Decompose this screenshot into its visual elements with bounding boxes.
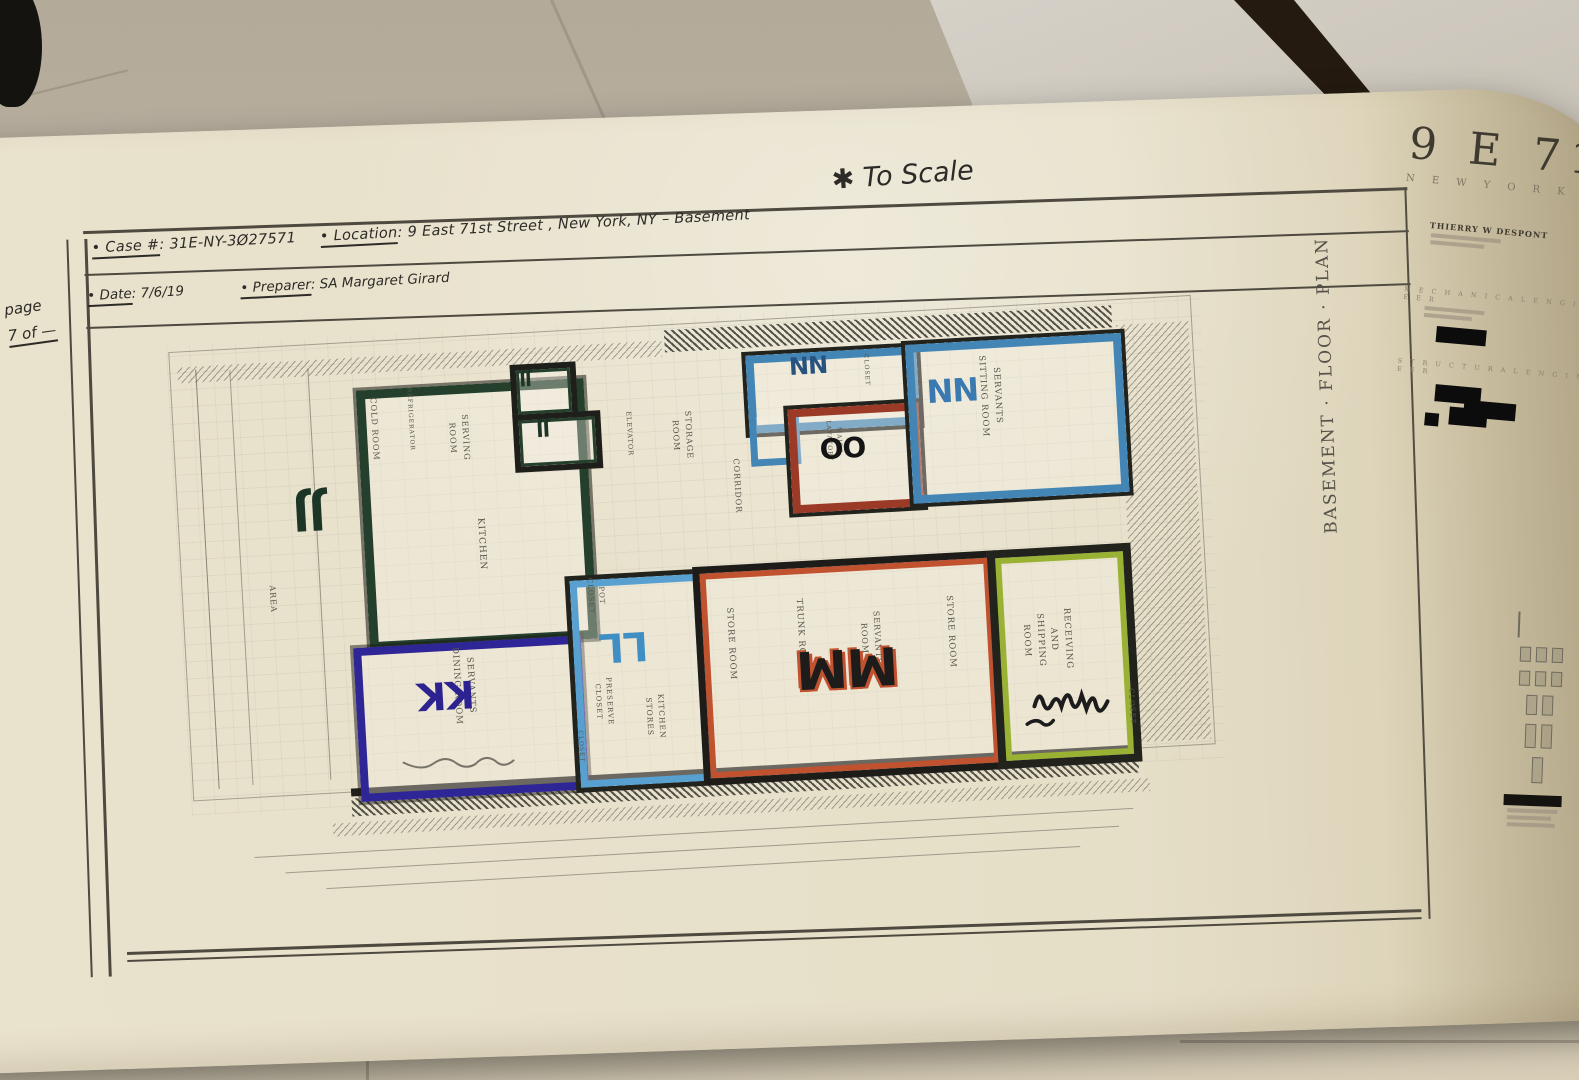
date-value: : 7/6/19 — [131, 283, 184, 302]
date-header: • Date: 7/6/19 • Preparer: SA Margaret G… — [87, 270, 450, 304]
label-storage-room: STORAGE ROOM — [667, 407, 696, 464]
facade-elevation — [1498, 611, 1575, 958]
code-nn-small: NN — [789, 349, 829, 379]
preparer-value: : SA Margaret Girard — [310, 270, 449, 293]
illegible-text-line — [1430, 240, 1484, 249]
evidence-photo: • Case #: 31E-NY-3Ø27571 • Location: 9 E… — [0, 0, 1579, 1080]
code-ll: LL — [598, 622, 649, 671]
illegible-text-line — [1507, 822, 1555, 828]
scale-note: ✱ To Scale — [831, 155, 975, 196]
section-structural: S T R U C T U R A L E N G I N E E R — [1397, 357, 1579, 390]
redaction-bar — [1436, 326, 1487, 346]
case-header: • Case #: 31E-NY-3Ø27571 • Location: 9 E… — [91, 207, 750, 256]
frame-line — [127, 909, 1421, 955]
title-block: 9 E 71 N E W Y O R K THIERRY W DESPONT M… — [1384, 118, 1579, 440]
page-note: page 7 of — — [3, 292, 58, 349]
label-pot-closet: POT CLOSET — [583, 572, 608, 619]
label-closet-right: CLOSET — [1125, 684, 1139, 729]
code-kk: KK — [417, 672, 476, 719]
case-number: : 31E-NY-3Ø27571 — [159, 230, 296, 253]
redaction-bar — [1424, 412, 1439, 426]
label-preserve-closet: PRESERVE CLOSET — [591, 676, 616, 727]
redaction-bar — [1448, 406, 1487, 427]
facade-windows — [1508, 670, 1573, 687]
illegible-text-line — [1424, 313, 1472, 321]
blueprint-sheet: • Case #: 31E-NY-3Ø27571 • Location: 9 E… — [0, 84, 1579, 1074]
floor-plan: COLD ROOM REFRIGERATOR SERVING ROOM KITC… — [164, 258, 1231, 920]
location-value: : 9 East 71st Street , New York, NY – Ba… — [397, 207, 750, 241]
illegible-text-line — [1507, 808, 1557, 814]
facade-windows — [1504, 756, 1569, 784]
code-jj-alcove-1: JJ — [520, 368, 533, 390]
facade-base-band — [1503, 794, 1561, 807]
redaction-bar — [1434, 384, 1481, 405]
code-jj: JJ — [292, 486, 327, 542]
room-jj-alcove-2 — [512, 410, 603, 473]
page-value: 7 of — — [7, 320, 58, 347]
code-jj-alcove-2: JJ — [536, 417, 550, 442]
case-label: • Case # — [91, 237, 160, 259]
facade-windows — [1506, 723, 1571, 749]
frame-line — [127, 917, 1421, 962]
room-nn-sitting — [905, 333, 1130, 504]
preparer-label: • Preparer — [240, 277, 311, 300]
tile-seam — [1180, 1040, 1579, 1043]
page-label: page — [3, 296, 43, 319]
drawing-title: BASEMENT · FLOOR · PLAN — [1318, 423, 1362, 674]
location-label: • Location — [319, 225, 398, 248]
photographer-glove — [0, 0, 42, 107]
facade-windows — [1507, 694, 1572, 716]
date-label: • Date — [87, 286, 132, 307]
chimney-line — [1518, 611, 1521, 637]
facade-windows — [1509, 646, 1574, 663]
dimension-line — [326, 846, 1080, 889]
label-kitchen-stores: KITCHEN STORES — [642, 690, 669, 743]
label-serving-room: SERVING ROOM — [444, 405, 473, 470]
illegible-text-line — [1507, 815, 1551, 821]
label-area: AREA — [265, 579, 280, 620]
handwritten-scribble-dining — [397, 750, 518, 777]
code-mm: MM — [795, 634, 900, 700]
code-oo: OO — [820, 429, 867, 464]
handwritten-scribble-receiving — [1015, 684, 1112, 731]
code-nn-sitting: NN — [926, 369, 980, 410]
label-receiving-shipping: RECEIVING AND SHIPPING ROOM — [1017, 593, 1076, 686]
